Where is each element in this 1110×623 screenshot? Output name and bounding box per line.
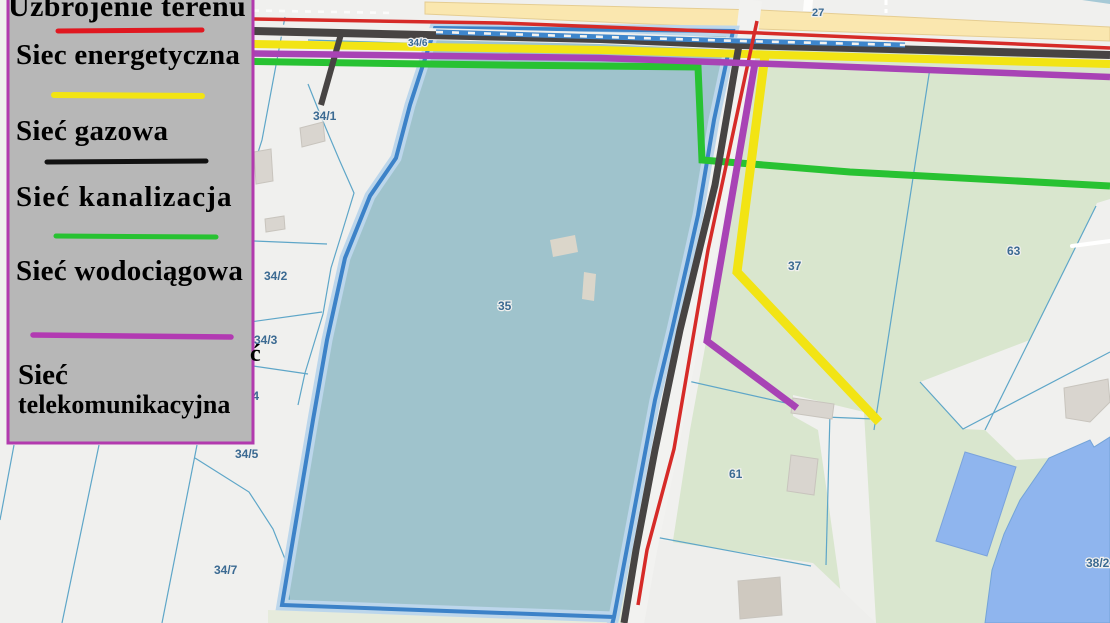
svg-text:Sieć gazowa: Sieć gazowa [16, 115, 168, 147]
svg-text:34/6: 34/6 [408, 38, 428, 49]
svg-text:Sieć kanalizacja: Sieć kanalizacja [16, 181, 233, 213]
svg-text:38/2: 38/2 [1086, 556, 1110, 570]
svg-text:Sieć wodociągowa: Sieć wodociągowa [16, 255, 243, 287]
svg-text:34/7: 34/7 [214, 563, 238, 577]
svg-text:Siec energetyczna: Siec energetyczna [16, 39, 240, 71]
svg-text:61: 61 [729, 467, 743, 481]
svg-text:Uzbrojenie terenu: Uzbrojenie terenu [8, 0, 246, 23]
svg-text:27: 27 [812, 7, 824, 19]
svg-text:telekomunikacyjna: telekomunikacyjna [18, 390, 230, 419]
svg-text:34/1: 34/1 [313, 109, 337, 123]
svg-text:ć: ć [250, 341, 261, 367]
svg-text:35: 35 [498, 299, 512, 313]
svg-text:63: 63 [1007, 244, 1021, 258]
svg-text:Sieć: Sieć [18, 359, 68, 391]
svg-text:34/5: 34/5 [235, 447, 259, 461]
svg-text:34/2: 34/2 [264, 269, 288, 283]
svg-text:37: 37 [788, 259, 802, 273]
